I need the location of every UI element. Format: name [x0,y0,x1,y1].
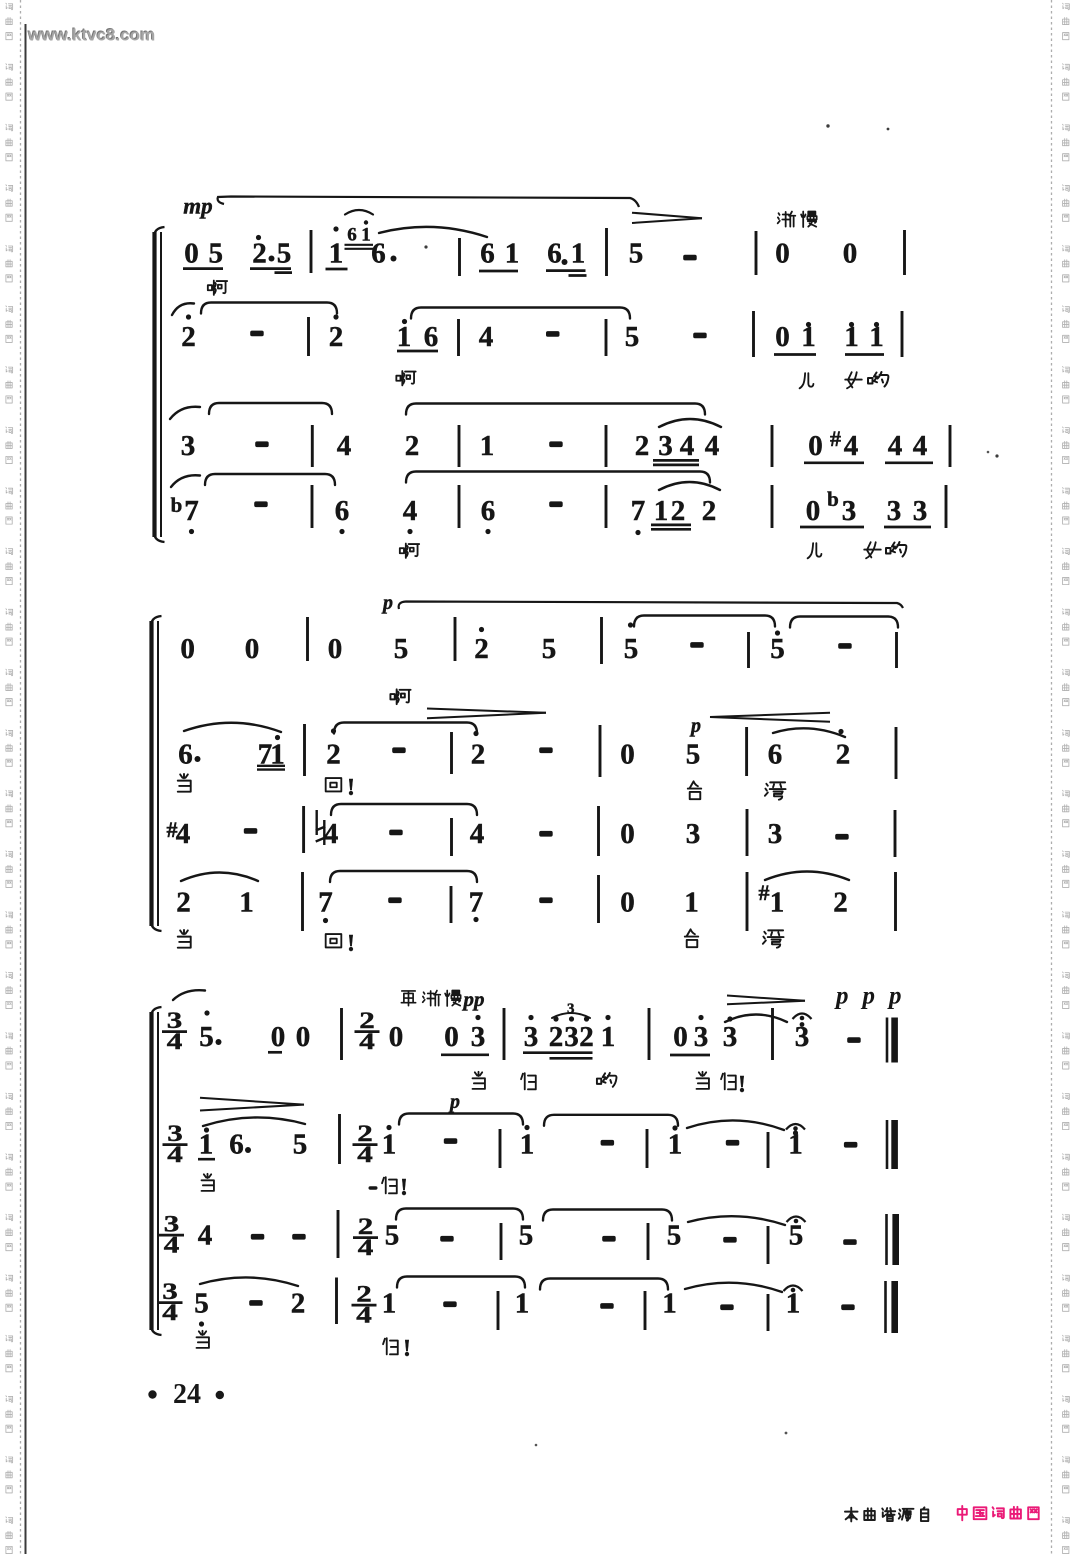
svg-text:4: 4 [164,1233,180,1258]
svg-text:p: p [689,715,701,737]
svg-text:5: 5 [667,1220,682,1252]
svg-text:0: 0 [245,633,260,665]
svg-text:4: 4 [337,430,352,462]
svg-text:www.ktvc8.com: www.ktvc8.com [27,26,155,45]
svg-text:6: 6 [178,739,193,771]
svg-text:0: 0 [775,238,790,270]
svg-text:6: 6 [480,238,495,270]
svg-text:1: 1 [654,495,669,527]
svg-text:1: 1 [329,238,344,270]
svg-text:b: b [171,493,183,517]
svg-text:0: 0 [620,739,635,771]
svg-text:3: 3 [723,1021,738,1053]
svg-text:4: 4 [167,1029,183,1054]
svg-text:0: 0 [389,1021,404,1053]
svg-text:2: 2 [291,1288,306,1320]
svg-text:2: 2 [471,739,486,771]
svg-text:5: 5 [686,739,701,771]
svg-text:3: 3 [567,1001,575,1017]
svg-text:1: 1 [505,238,520,270]
svg-text:4: 4 [913,430,928,462]
svg-text:0: 0 [328,633,343,665]
svg-text:5: 5 [394,633,409,665]
svg-text:6: 6 [347,225,357,246]
svg-text:2: 2 [252,238,267,270]
svg-text:7: 7 [184,495,199,527]
svg-text:4: 4 [324,818,339,850]
svg-text:2: 2 [833,887,848,919]
svg-text:2: 2 [326,739,341,771]
svg-text:1: 1 [382,1129,397,1161]
svg-text:6: 6 [768,739,783,771]
svg-text:7: 7 [469,887,484,919]
svg-text:!: ! [400,1175,408,1201]
svg-text:5: 5 [789,1220,804,1252]
svg-text:4: 4 [167,1142,183,1167]
svg-text:b: b [827,487,839,511]
svg-text:3: 3 [658,430,673,462]
svg-text:3: 3 [913,495,928,527]
svg-text:2: 2 [579,1021,594,1053]
svg-text:24: 24 [173,1379,201,1410]
svg-text:4: 4 [470,818,485,850]
svg-text:4: 4 [356,1303,372,1328]
svg-text:6: 6 [547,238,562,270]
svg-text:3: 3 [524,1021,539,1053]
svg-text:5: 5 [519,1220,534,1252]
svg-text:0: 0 [180,633,195,665]
svg-text:1: 1 [382,1288,397,1320]
svg-text:1: 1 [662,1288,677,1320]
svg-text:2: 2 [549,1021,564,1053]
svg-text:5: 5 [277,238,292,270]
svg-text:2: 2 [181,321,196,353]
svg-text:1: 1 [684,887,699,919]
svg-text:2: 2 [702,495,717,527]
svg-text:0: 0 [673,1021,688,1053]
svg-text:5: 5 [770,633,785,665]
svg-text:3: 3 [686,818,701,850]
svg-text:2: 2 [635,430,650,462]
svg-text:2: 2 [836,739,851,771]
svg-text:1: 1 [668,1129,683,1161]
svg-text:#: # [830,426,841,451]
svg-text:mp: mp [183,194,212,219]
svg-text:3: 3 [181,430,196,462]
svg-text:1: 1 [770,887,785,919]
svg-text:0: 0 [775,321,790,353]
svg-text:1: 1 [480,430,495,462]
svg-text:4: 4 [479,321,494,353]
svg-text:6: 6 [229,1129,244,1161]
svg-text:4: 4 [844,430,859,462]
svg-text:0: 0 [444,1021,459,1053]
svg-text:5: 5 [194,1288,209,1320]
svg-text:2: 2 [671,495,686,527]
svg-text:0: 0 [184,238,199,270]
svg-text:5: 5 [625,321,640,353]
svg-text:2: 2 [474,633,489,665]
svg-text:3: 3 [694,1021,709,1053]
svg-text:0: 0 [620,887,635,919]
svg-text:!: ! [347,775,355,801]
svg-text:0: 0 [296,1021,311,1053]
svg-text:1: 1 [515,1288,530,1320]
svg-text:!: ! [347,931,355,957]
svg-text:4: 4 [198,1220,213,1252]
svg-text:3: 3 [471,1021,486,1053]
svg-text:3: 3 [564,1021,579,1053]
svg-text:1: 1 [571,238,586,270]
svg-text:p: p [381,592,393,614]
svg-text:6: 6 [335,495,350,527]
svg-text:5: 5 [293,1129,308,1161]
svg-text:!: ! [738,1072,746,1098]
svg-text:1: 1 [601,1021,616,1053]
svg-text:1: 1 [397,321,412,353]
svg-text:3: 3 [887,495,902,527]
svg-text:1: 1 [520,1129,535,1161]
svg-text:4: 4 [176,818,191,850]
svg-text:ppp: ppp [834,983,916,1010]
svg-text:2: 2 [176,887,191,919]
svg-text:4: 4 [359,1029,375,1054]
svg-text:5: 5 [624,633,639,665]
svg-text:6: 6 [481,495,496,527]
svg-text:0: 0 [808,430,823,462]
svg-text:7: 7 [631,495,646,527]
svg-text:0: 0 [620,818,635,850]
svg-text:4: 4 [162,1300,178,1325]
svg-text:3: 3 [768,818,783,850]
svg-text:pp: pp [462,987,485,1011]
svg-text:#: # [759,880,770,905]
svg-text:4: 4 [357,1142,373,1167]
svg-text:5: 5 [208,238,223,270]
svg-text:1: 1 [786,1288,801,1320]
svg-text:!: ! [403,1336,411,1362]
svg-text:5: 5 [199,1021,214,1053]
svg-text:1: 1 [239,887,254,919]
svg-text:0: 0 [806,495,821,527]
svg-text:0: 0 [271,1021,286,1053]
svg-text:2: 2 [405,430,420,462]
svg-text:3: 3 [842,495,857,527]
svg-text:4: 4 [403,495,418,527]
svg-text:7: 7 [318,887,333,919]
svg-text:6: 6 [371,238,386,270]
svg-text:1: 1 [361,225,371,246]
svg-text:4: 4 [680,430,695,462]
svg-text:2: 2 [329,321,344,353]
svg-text:p: p [448,1091,460,1113]
svg-text:5: 5 [542,633,557,665]
svg-text:5: 5 [385,1220,400,1252]
svg-text:4: 4 [705,430,720,462]
svg-text:0: 0 [843,238,858,270]
svg-text:5: 5 [629,238,644,270]
svg-text:6: 6 [424,321,439,353]
svg-text:4: 4 [888,430,903,462]
svg-text:4: 4 [358,1235,374,1260]
svg-text:1: 1 [199,1129,214,1161]
